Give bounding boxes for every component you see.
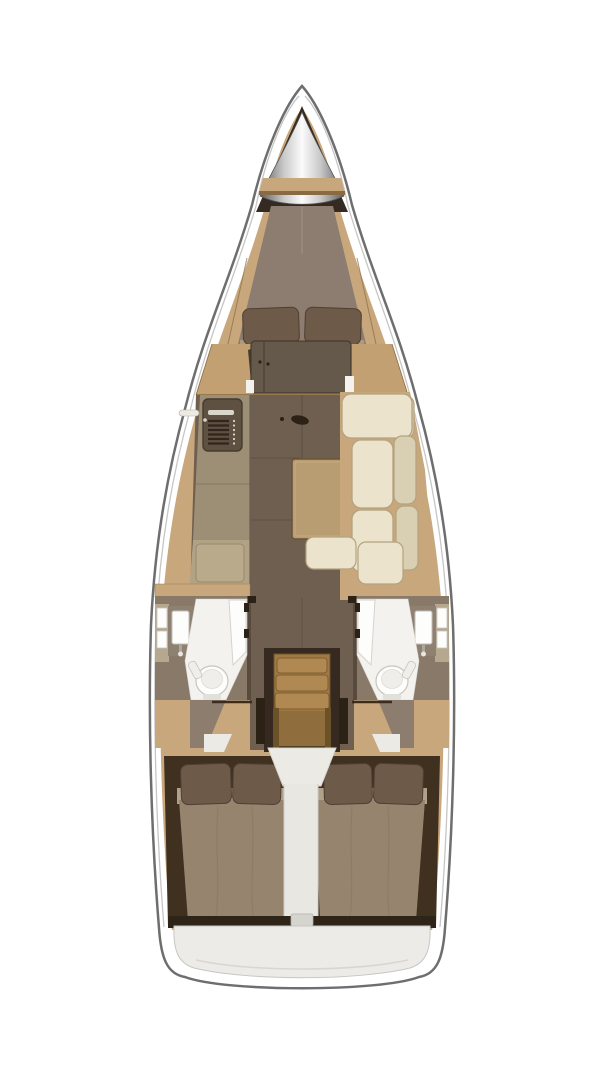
yacht-layout-plan: Sailboat interior floor plan (top view) [0, 0, 604, 1080]
bow-shelf [259, 178, 345, 193]
aft-pillow-port-2 [232, 763, 281, 804]
aft-bed-mattress-starboard [315, 800, 425, 921]
stairs-flank-port [256, 698, 265, 744]
wardrobe-cabinet [251, 341, 351, 393]
aft-pillow-port-1 [180, 763, 231, 805]
head-locker-door-2 [157, 631, 167, 648]
stair-tread-1 [277, 658, 327, 673]
settee-bench-cushion [306, 537, 356, 569]
stairs-lower-body [276, 711, 328, 746]
head-door-hinge-top [244, 603, 249, 612]
vberth-pillow-port [242, 307, 299, 345]
stair-tread-3 [275, 693, 329, 709]
head-door-hinge-bottom [244, 629, 249, 638]
aft-pillow-starboard-1 [323, 763, 372, 804]
wardrobe-handle-top [258, 360, 261, 363]
galley-door-handle [179, 410, 199, 416]
head-sink-basin [172, 611, 189, 644]
head-locker-door-1 [157, 608, 167, 628]
wardrobe-handle-bottom [266, 362, 269, 365]
corridor-hinge-port [248, 596, 256, 603]
stair-tread-2 [276, 675, 328, 691]
galley-end-cap [155, 584, 250, 597]
corridor-hinge-starboard [348, 596, 356, 603]
stairs-rail-starboard [325, 708, 331, 748]
settee-seat-1 [352, 440, 393, 508]
settee-aft-cushion [358, 542, 403, 584]
toilet-seat [202, 670, 223, 689]
stern-tab [291, 914, 313, 926]
stairs-flank-starboard [339, 698, 348, 744]
floor-hatch-dot [280, 417, 284, 421]
galley-fridge-lid [196, 544, 244, 582]
stairs-rail-port [273, 708, 279, 748]
head-inboard-wall [247, 596, 251, 704]
stove-knob [203, 418, 207, 422]
settee-cushion-forward [342, 394, 412, 438]
settee-backrest-1 [394, 436, 416, 504]
toilet-hinge [203, 694, 221, 700]
cabin-door-gap [345, 376, 354, 393]
center-column [284, 784, 318, 924]
head-starboard [353, 596, 449, 704]
transom-deck [174, 926, 430, 978]
aft-pillow-starboard-2 [373, 763, 423, 805]
aft-bed-mattress-port [179, 800, 289, 921]
companionway [256, 648, 348, 752]
head-port [155, 596, 251, 704]
cabin-door-gap-port [246, 380, 254, 393]
head-faucet [178, 652, 183, 657]
forward-bulkhead [196, 341, 408, 395]
bow-shelf-edge [259, 191, 345, 195]
vberth-pillow-starboard [304, 307, 361, 345]
stern [168, 914, 436, 978]
stove-handle-bar [208, 410, 234, 415]
